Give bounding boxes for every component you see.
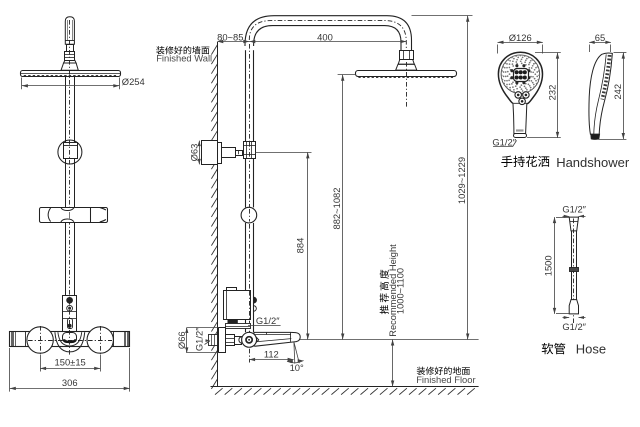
- svg-text:G1/2″: G1/2″: [193, 327, 204, 351]
- svg-text:G1/2″: G1/2″: [562, 203, 586, 214]
- svg-text:306: 306: [62, 377, 78, 388]
- svg-text:150±15: 150±15: [55, 357, 86, 368]
- svg-text:1000~1100: 1000~1100: [395, 268, 405, 314]
- svg-text:242: 242: [612, 84, 623, 100]
- svg-text:884: 884: [295, 238, 306, 254]
- svg-text:112: 112: [264, 348, 279, 359]
- svg-text:1500: 1500: [542, 255, 553, 276]
- svg-text:Ø63: Ø63: [189, 144, 200, 162]
- svg-text:1029~1229: 1029~1229: [456, 157, 467, 204]
- svg-text:65: 65: [595, 32, 605, 43]
- svg-text:232: 232: [546, 85, 557, 101]
- svg-text:G1/2″: G1/2″: [562, 321, 586, 332]
- svg-text:Ø126: Ø126: [509, 32, 532, 43]
- svg-text:80~85: 80~85: [217, 31, 243, 42]
- svg-text:Finished Wall: Finished Wall: [156, 52, 212, 63]
- svg-text:Hose: Hose: [576, 342, 606, 357]
- svg-text:G1/2″: G1/2″: [256, 315, 280, 326]
- svg-text:882~1082: 882~1082: [331, 188, 342, 230]
- svg-text:Finished Floor: Finished Floor: [416, 374, 475, 385]
- svg-text:Handshower: Handshower: [556, 155, 630, 170]
- svg-text:400: 400: [317, 31, 333, 42]
- svg-text:Ø66: Ø66: [176, 331, 187, 349]
- svg-text:10°: 10°: [290, 362, 304, 373]
- svg-text:Ø254: Ø254: [122, 76, 145, 87]
